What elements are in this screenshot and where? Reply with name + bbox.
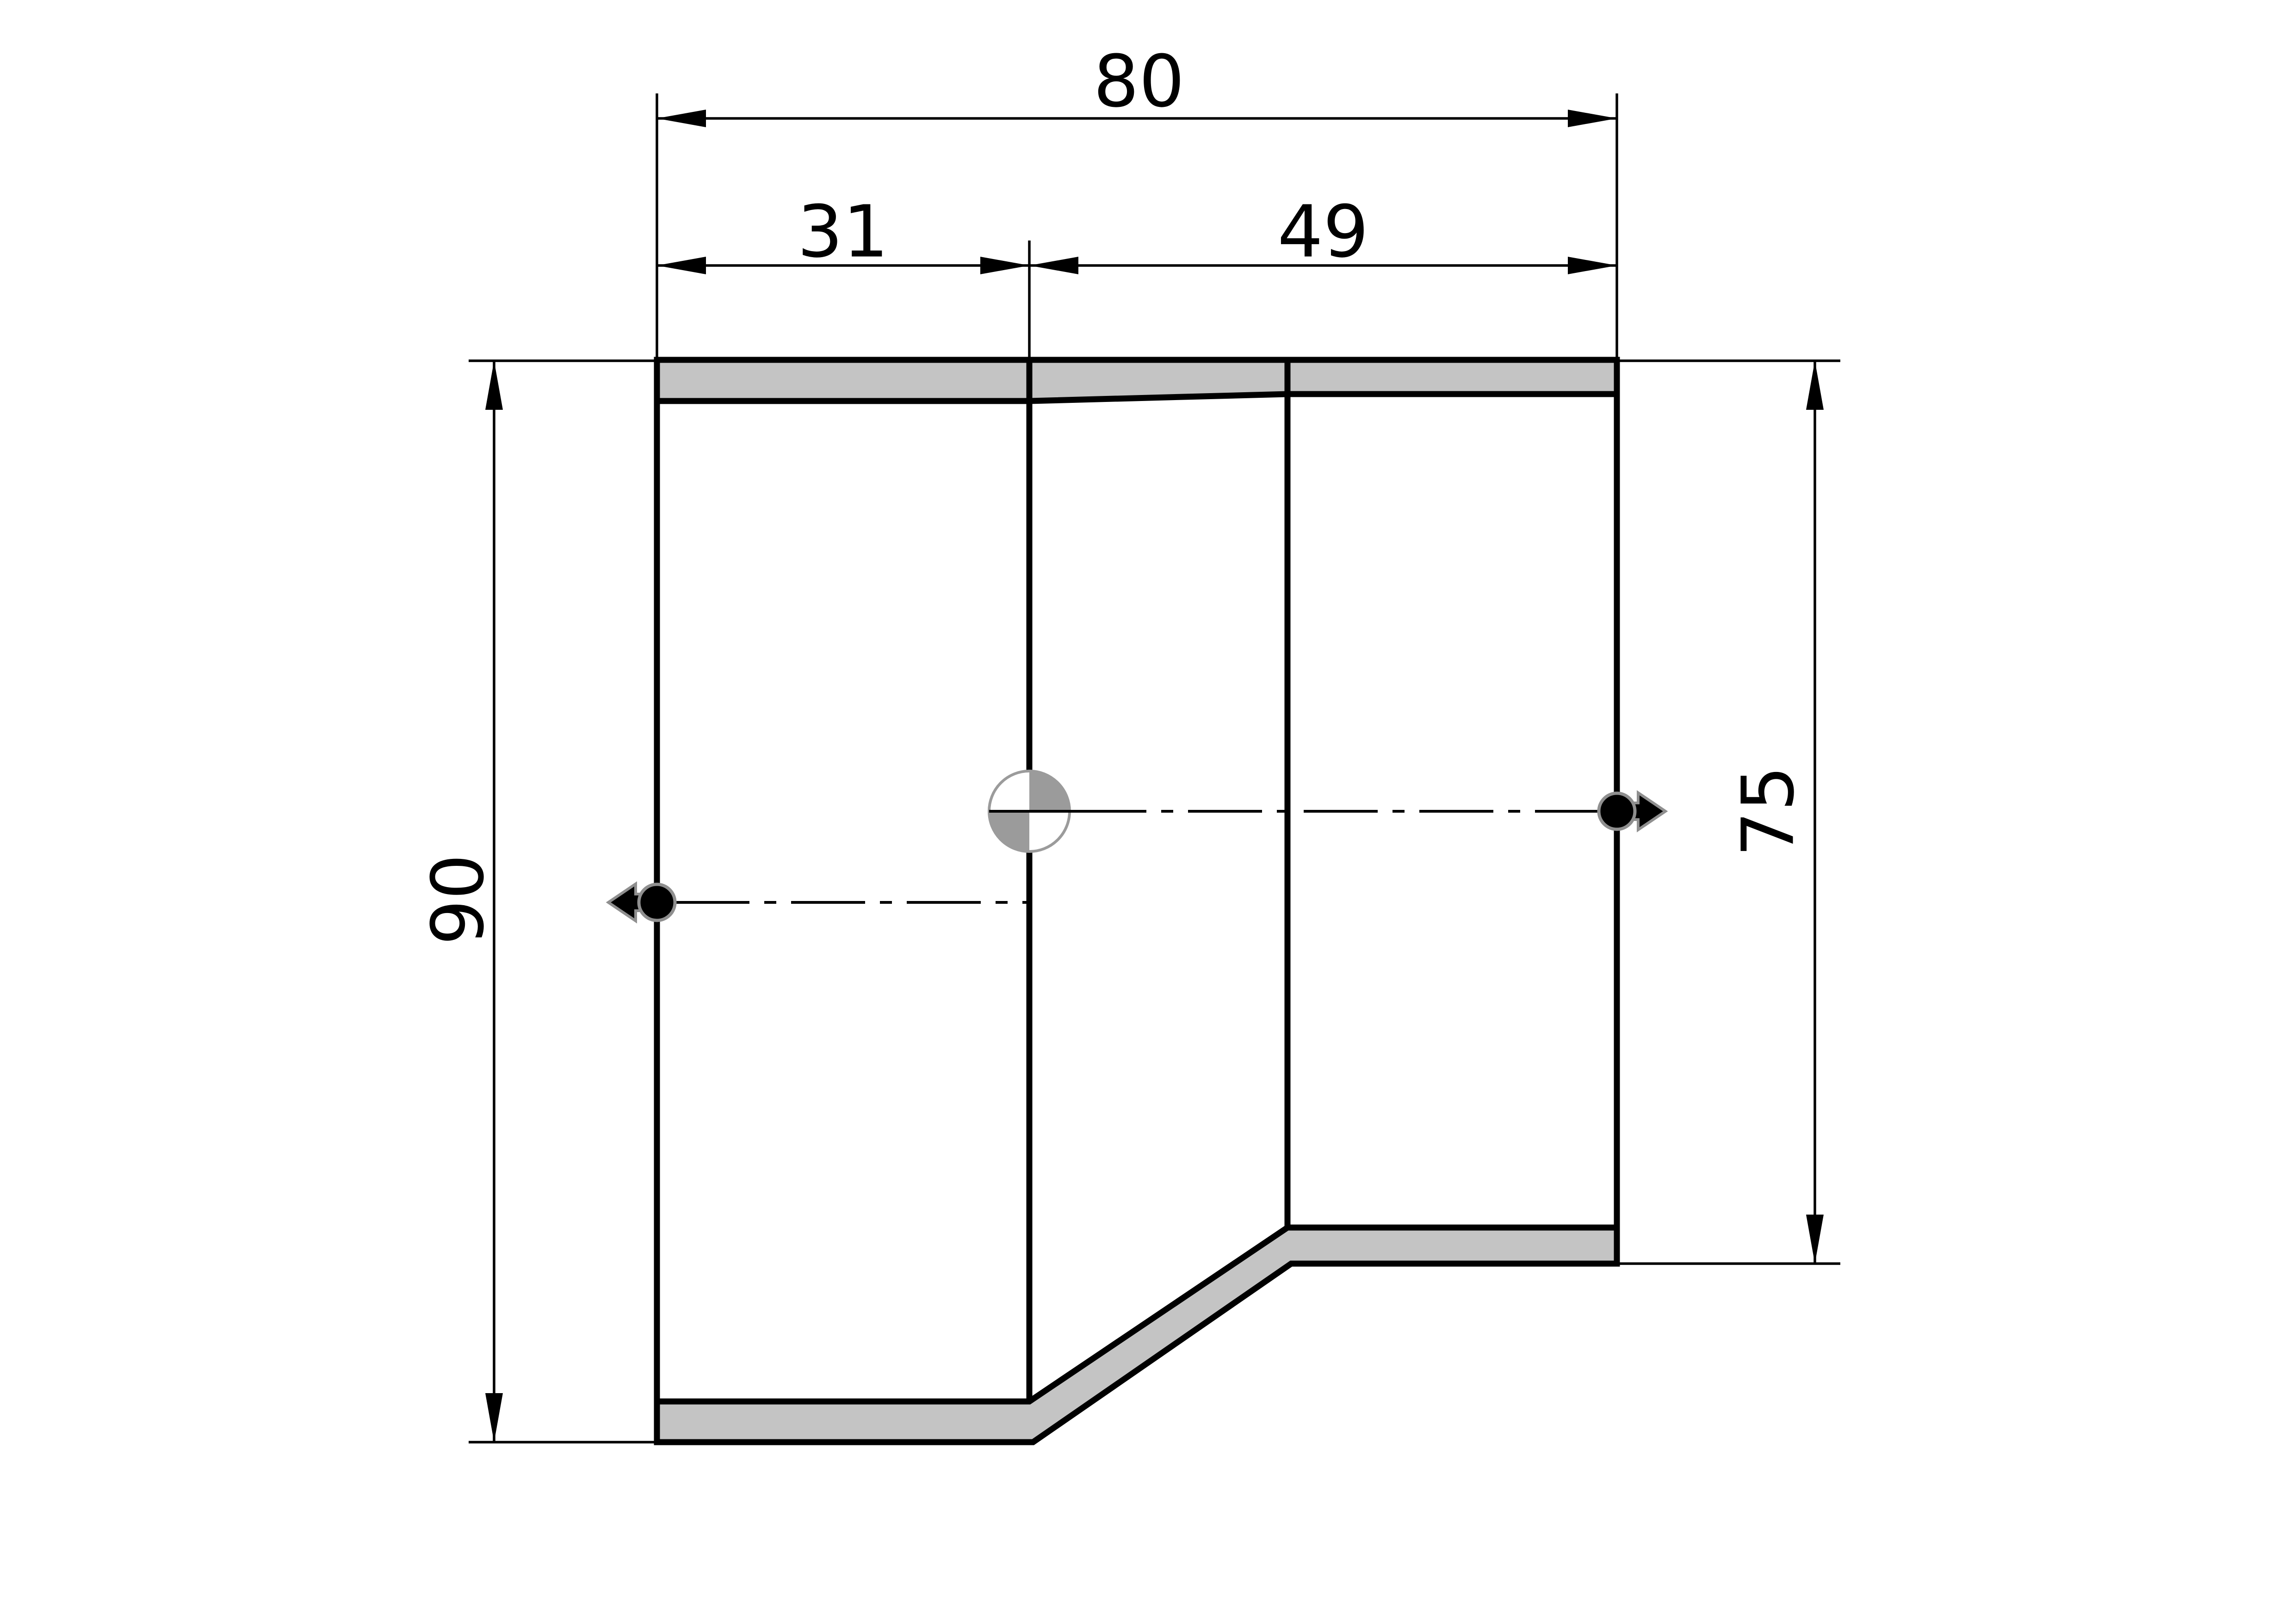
dimension-value-90: 90 bbox=[416, 854, 500, 945]
dimension-value-31: 31 bbox=[797, 190, 888, 274]
left-axis-dot bbox=[639, 884, 675, 920]
dimension-value-80: 80 bbox=[1093, 40, 1184, 123]
dimension-value-75: 75 bbox=[1727, 765, 1810, 857]
technical-drawing-canvas: 80 31 49 90 75 bbox=[0, 0, 2296, 1623]
center-of-mass-icon bbox=[989, 771, 1072, 852]
dimension-value-49: 49 bbox=[1277, 190, 1368, 274]
right-axis-dot bbox=[1599, 793, 1635, 829]
drawing-background bbox=[0, 0, 2296, 1623]
